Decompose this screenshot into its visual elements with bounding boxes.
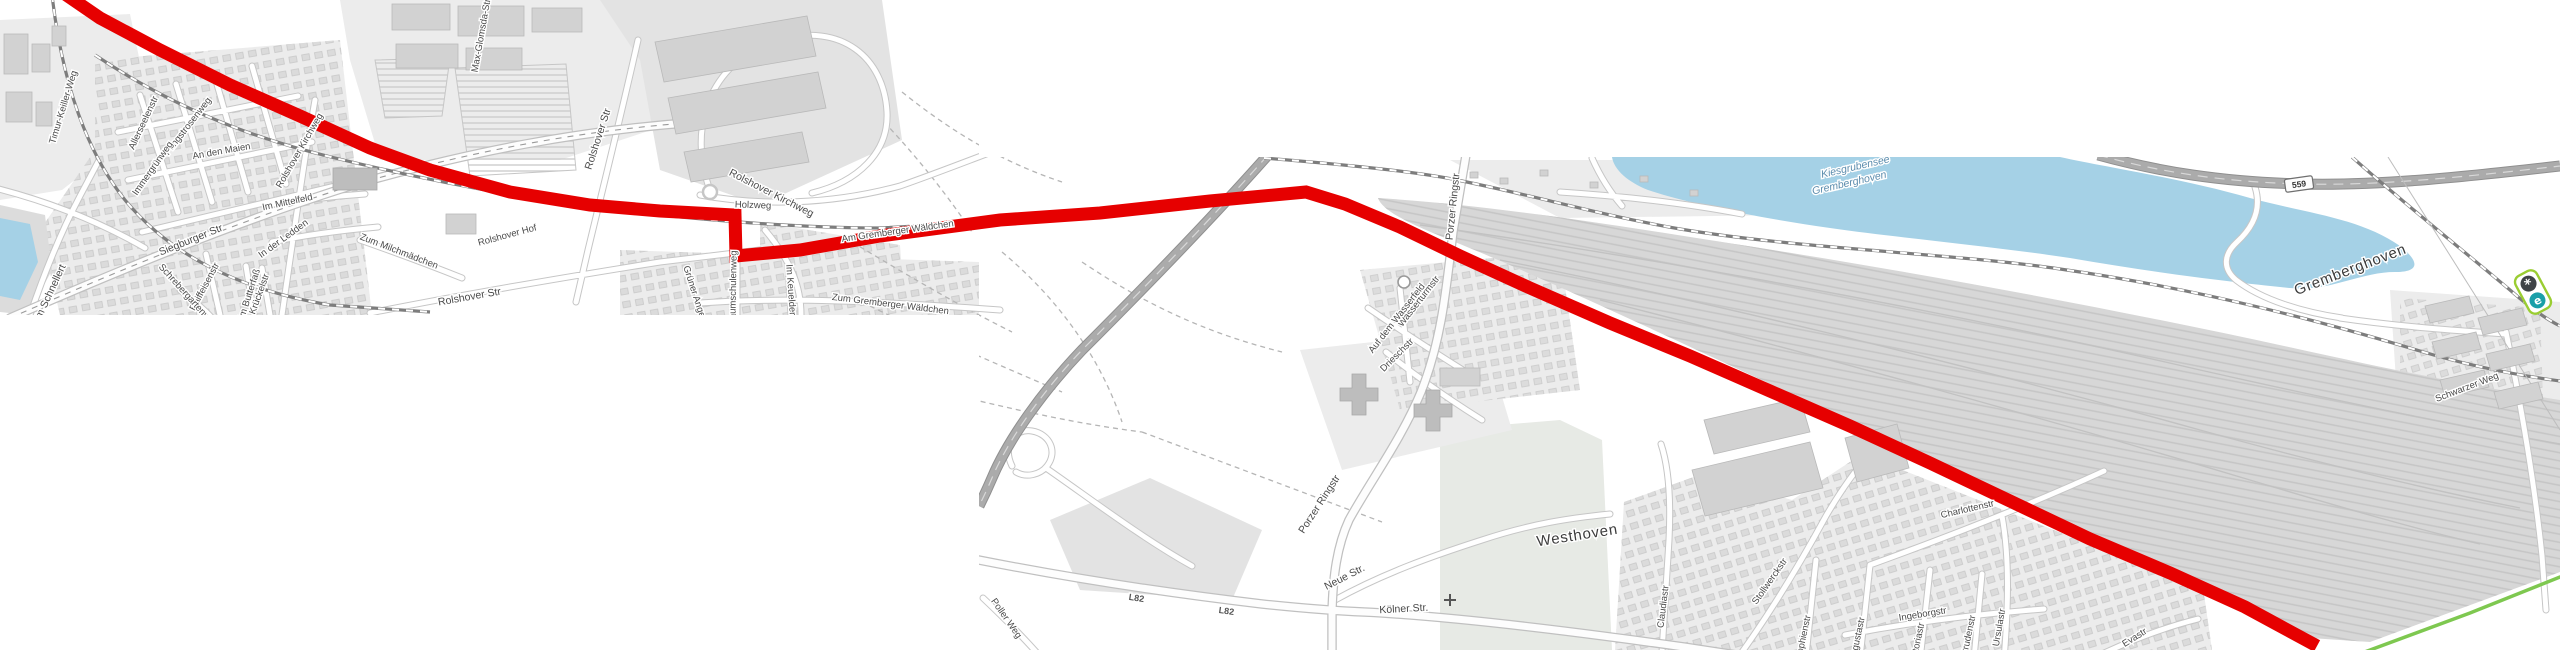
map-viewport[interactable]: 559 * e Poller KirchwegAm SchnellertTimu… xyxy=(0,0,2560,650)
route-map[interactable]: 559 * e Poller KirchwegAm SchnellertTimu… xyxy=(0,0,2560,650)
